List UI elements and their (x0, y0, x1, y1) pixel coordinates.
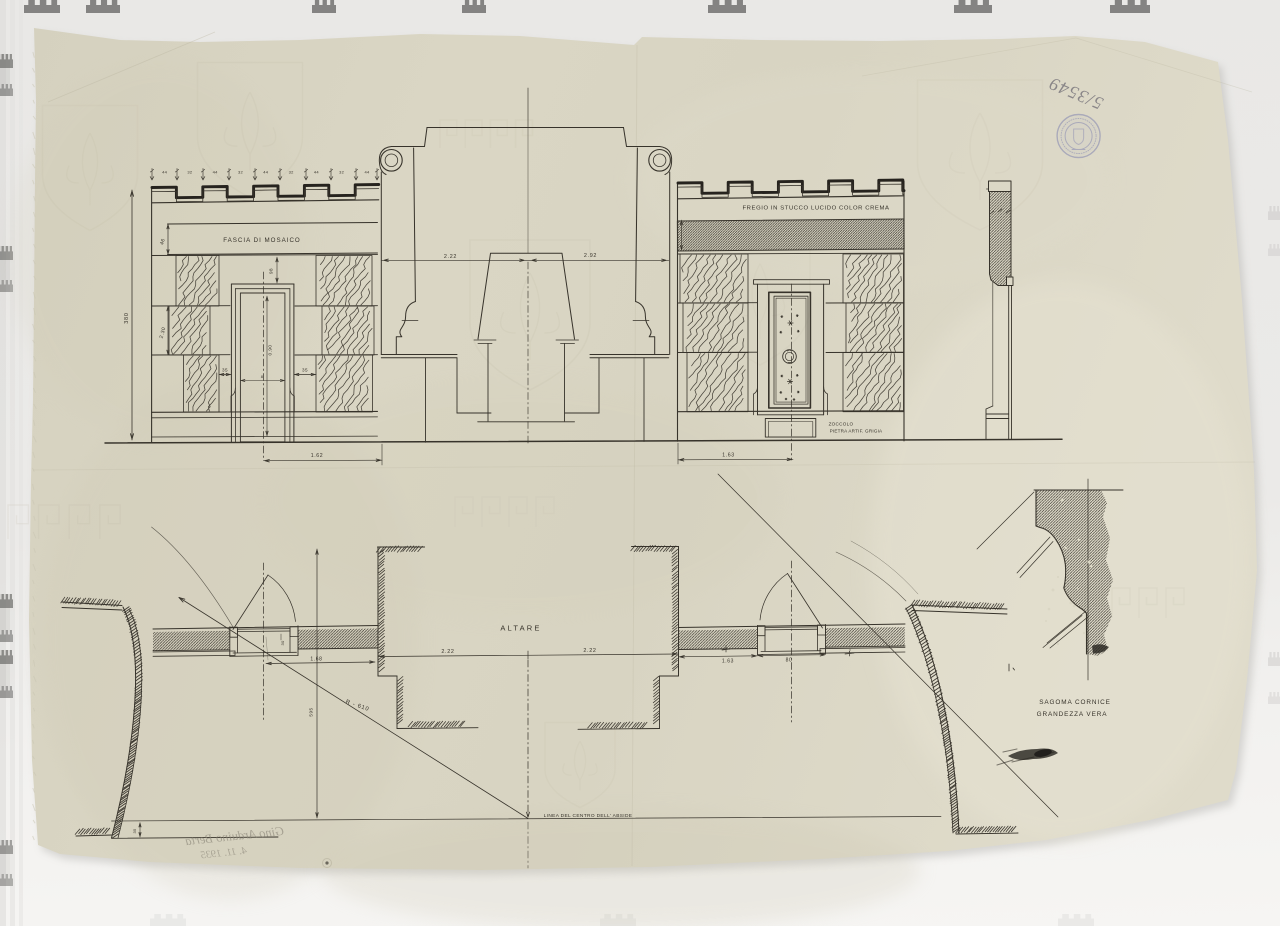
svg-text:1.63: 1.63 (722, 658, 734, 664)
svg-text:1.68: 1.68 (310, 657, 322, 663)
svg-text:380: 380 (124, 312, 130, 324)
svg-text:ALTARE: ALTARE (500, 624, 541, 633)
svg-text:1.62: 1.62 (311, 453, 324, 459)
svg-text:PIETRA ARTIF. GRIGIA: PIETRA ARTIF. GRIGIA (830, 429, 883, 434)
svg-text:0.90: 0.90 (268, 345, 273, 356)
svg-text:30: 30 (280, 640, 285, 646)
svg-text:595: 595 (309, 707, 314, 716)
svg-text:FREGIO IN STUCCO LUCIDO COLOR: FREGIO IN STUCCO LUCIDO COLOR CREMA (742, 206, 889, 212)
svg-text:35: 35 (222, 368, 228, 373)
svg-text:2.92: 2.92 (584, 253, 597, 259)
svg-text:44: 44 (162, 170, 168, 175)
svg-text:44: 44 (314, 170, 320, 175)
svg-text:44: 44 (364, 170, 370, 175)
svg-text:44: 44 (213, 170, 219, 175)
svg-text:44: 44 (263, 170, 269, 175)
svg-text:1.63: 1.63 (722, 452, 735, 458)
svg-text:2.22: 2.22 (441, 649, 454, 655)
svg-text:FASCIA DI MOSAICO: FASCIA DI MOSAICO (223, 237, 301, 244)
svg-text:35: 35 (302, 368, 308, 373)
svg-text:32: 32 (289, 170, 295, 175)
svg-text:32: 32 (238, 170, 244, 175)
svg-text:ZOCCOLO: ZOCCOLO (829, 422, 854, 427)
svg-text:98: 98 (269, 268, 274, 274)
svg-text:LINEA DEL CENTRO DELL' ABSIDE: LINEA DEL CENTRO DELL' ABSIDE (544, 813, 633, 819)
svg-text:2.22: 2.22 (444, 254, 457, 260)
svg-text:32: 32 (339, 170, 345, 175)
svg-text:SAGOMA CORNICE: SAGOMA CORNICE (1039, 699, 1111, 706)
svg-text:35: 35 (132, 828, 137, 834)
svg-text:80: 80 (786, 657, 793, 663)
svg-text:32: 32 (187, 170, 193, 175)
svg-text:2.22: 2.22 (583, 648, 596, 654)
svg-text:GRANDEZZA VERA: GRANDEZZA VERA (1037, 711, 1108, 718)
